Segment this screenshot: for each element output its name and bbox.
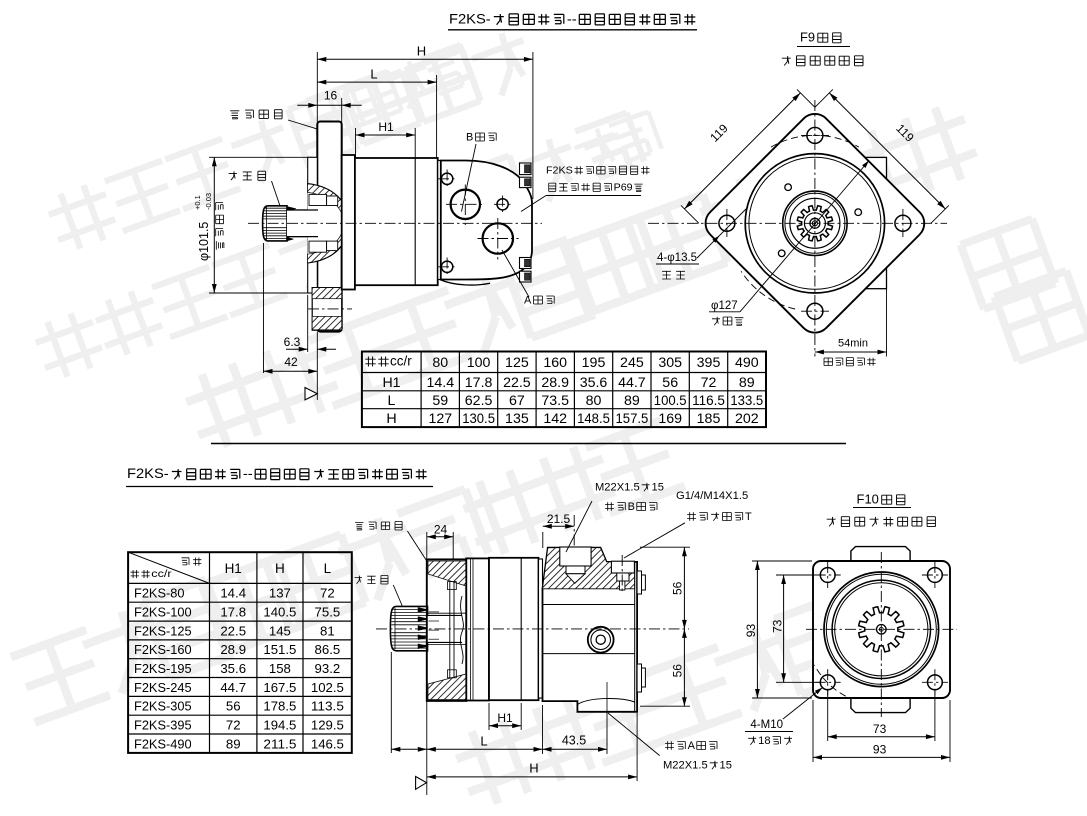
svg-text:129.5: 129.5 <box>311 717 344 732</box>
svg-text:6.3: 6.3 <box>284 335 301 349</box>
svg-text:4-M10: 4-M10 <box>750 719 783 731</box>
svg-text:137: 137 <box>269 586 291 601</box>
svg-text:H1: H1 <box>225 561 242 576</box>
svg-text:158: 158 <box>269 661 291 676</box>
svg-text:56: 56 <box>226 699 241 714</box>
svg-text:56: 56 <box>670 581 684 595</box>
svg-text:F2KS-305: F2KS-305 <box>134 699 192 714</box>
svg-text:F2KS-490: F2KS-490 <box>134 736 192 751</box>
svg-text:P69: P69 <box>614 181 633 193</box>
svg-text:H1: H1 <box>382 375 400 391</box>
svg-text:167.5: 167.5 <box>263 680 296 695</box>
svg-text:16: 16 <box>324 89 338 103</box>
svg-text:35.6: 35.6 <box>580 375 608 391</box>
svg-text:73: 73 <box>770 619 784 633</box>
svg-text:67: 67 <box>509 393 525 409</box>
svg-text:cc/r: cc/r <box>151 568 172 580</box>
svg-text:100: 100 <box>467 355 491 371</box>
svg-text:490: 490 <box>735 355 759 371</box>
svg-text:56: 56 <box>670 664 684 678</box>
svg-text:4-φ13.5: 4-φ13.5 <box>657 252 697 264</box>
svg-text:H1: H1 <box>378 120 394 134</box>
svg-text:+0.1: +0.1 <box>193 195 202 210</box>
svg-text:G1/4/M14X1.5: G1/4/M14X1.5 <box>676 490 748 502</box>
svg-text:L: L <box>370 67 377 82</box>
svg-text:28.9: 28.9 <box>220 642 246 657</box>
svg-text:185: 185 <box>697 411 721 427</box>
svg-text:L: L <box>480 734 487 749</box>
svg-text:151.5: 151.5 <box>263 642 296 657</box>
svg-text:89: 89 <box>739 375 755 391</box>
svg-text:15: 15 <box>652 481 664 493</box>
svg-text:202: 202 <box>735 411 759 427</box>
svg-text:135: 135 <box>505 411 529 427</box>
svg-text:35.6: 35.6 <box>220 661 246 676</box>
svg-text:L: L <box>388 393 396 409</box>
svg-text:H: H <box>386 411 396 427</box>
svg-text:M22X1.5: M22X1.5 <box>663 759 708 771</box>
svg-text:B: B <box>628 501 635 513</box>
svg-text:A: A <box>688 740 696 752</box>
svg-text:43.5: 43.5 <box>562 734 586 748</box>
svg-text:75.5: 75.5 <box>315 604 341 619</box>
svg-text:T: T <box>745 511 752 523</box>
svg-text:93.2: 93.2 <box>315 661 341 676</box>
svg-text:F2KS-245: F2KS-245 <box>134 680 192 695</box>
svg-text:62.5: 62.5 <box>465 393 493 409</box>
svg-text:195: 195 <box>582 355 606 371</box>
svg-text:116.5: 116.5 <box>692 393 725 409</box>
svg-text:169: 169 <box>658 411 682 427</box>
svg-text:14.4: 14.4 <box>427 375 455 391</box>
svg-text:L: L <box>324 561 332 576</box>
svg-text:φ101.5: φ101.5 <box>197 222 211 261</box>
svg-text:F2KS-195: F2KS-195 <box>134 661 192 676</box>
svg-text:21.5: 21.5 <box>547 512 571 526</box>
svg-text:17.8: 17.8 <box>220 604 246 619</box>
svg-text:80: 80 <box>432 355 448 371</box>
svg-text:-0.03: -0.03 <box>204 193 213 210</box>
svg-text:F2KS-395: F2KS-395 <box>134 717 192 732</box>
svg-text:89: 89 <box>226 736 241 751</box>
svg-text:178.5: 178.5 <box>263 699 296 714</box>
svg-text:22.5: 22.5 <box>220 623 246 638</box>
svg-text:--: -- <box>567 12 577 28</box>
svg-text:F2KS-: F2KS- <box>127 466 169 482</box>
svg-text:86.5: 86.5 <box>315 642 341 657</box>
svg-text:127: 127 <box>428 411 452 427</box>
svg-text:146.5: 146.5 <box>311 736 344 751</box>
svg-text:H: H <box>529 761 538 776</box>
svg-text:42: 42 <box>284 355 298 369</box>
svg-text:cc/r: cc/r <box>390 353 412 368</box>
svg-text:22.5: 22.5 <box>503 375 531 391</box>
svg-text:305: 305 <box>658 355 682 371</box>
svg-text:φ127: φ127 <box>711 300 738 312</box>
svg-text:160: 160 <box>543 355 567 371</box>
svg-text:F2KS-160: F2KS-160 <box>134 642 192 657</box>
svg-text:130.5: 130.5 <box>462 411 495 427</box>
svg-text:B: B <box>466 131 473 143</box>
svg-text:15: 15 <box>720 759 732 771</box>
svg-text:72: 72 <box>320 586 335 601</box>
svg-text:194.5: 194.5 <box>263 717 296 732</box>
svg-text:145: 145 <box>269 623 291 638</box>
svg-text:17.8: 17.8 <box>465 375 493 391</box>
svg-text:142: 142 <box>543 411 567 427</box>
svg-text:F2KS-125: F2KS-125 <box>134 623 192 638</box>
svg-text:81: 81 <box>320 623 335 638</box>
svg-text:157.5: 157.5 <box>616 411 649 427</box>
svg-text:M22X1.5: M22X1.5 <box>595 481 640 493</box>
svg-text:F10: F10 <box>857 493 879 507</box>
svg-text:89: 89 <box>624 393 640 409</box>
svg-text:93: 93 <box>744 624 758 638</box>
svg-text:395: 395 <box>697 355 721 371</box>
svg-text:28.9: 28.9 <box>541 375 569 391</box>
svg-text:73: 73 <box>873 722 887 736</box>
svg-text:44.7: 44.7 <box>618 375 646 391</box>
svg-text:80: 80 <box>586 393 602 409</box>
svg-text:102.5: 102.5 <box>311 680 344 695</box>
svg-text:18: 18 <box>758 735 770 747</box>
svg-text:44.7: 44.7 <box>220 680 246 695</box>
svg-text:F2KS-80: F2KS-80 <box>134 586 185 601</box>
svg-text:245: 245 <box>620 355 644 371</box>
svg-text:F2KS-: F2KS- <box>449 12 491 28</box>
svg-text:125: 125 <box>505 355 529 371</box>
svg-text:133.5: 133.5 <box>730 393 763 409</box>
svg-text:72: 72 <box>701 375 717 391</box>
svg-text:72: 72 <box>226 717 241 732</box>
svg-text:54min: 54min <box>838 338 868 350</box>
svg-text:14.4: 14.4 <box>220 586 246 601</box>
svg-text:148.5: 148.5 <box>577 411 610 427</box>
svg-text:59: 59 <box>432 393 448 409</box>
svg-text:H: H <box>275 561 285 576</box>
svg-text:F2KS: F2KS <box>546 164 573 176</box>
svg-text:100.5: 100.5 <box>654 393 687 409</box>
svg-text:211.5: 211.5 <box>263 736 296 751</box>
svg-text:140.5: 140.5 <box>263 604 296 619</box>
svg-text:113.5: 113.5 <box>311 699 344 714</box>
svg-text:H1: H1 <box>497 711 513 725</box>
svg-text:H: H <box>417 44 426 59</box>
svg-text:93: 93 <box>873 743 887 757</box>
svg-text:24: 24 <box>434 523 448 537</box>
svg-text:--: -- <box>243 466 253 482</box>
svg-text:F2KS-100: F2KS-100 <box>134 604 192 619</box>
svg-text:73.5: 73.5 <box>541 393 569 409</box>
svg-text:56: 56 <box>662 375 678 391</box>
svg-text:F9: F9 <box>800 31 815 45</box>
